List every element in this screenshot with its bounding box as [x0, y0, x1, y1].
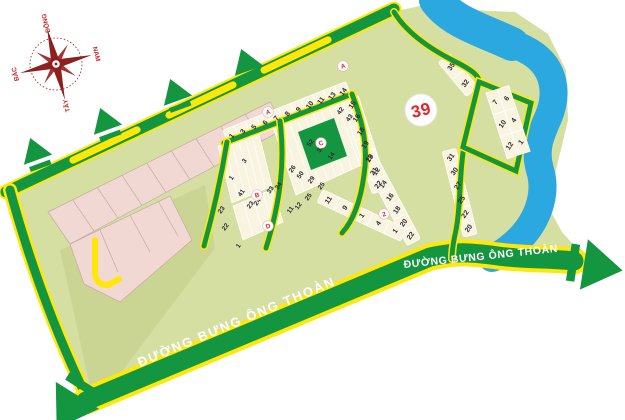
block-marker: A	[338, 61, 349, 72]
subdivision-map-image: 1356789101113141516181920212213121416182…	[0, 0, 625, 420]
block-marker: D	[263, 221, 274, 232]
road-exit-arrow-east	[565, 237, 625, 296]
block-marker: B	[252, 190, 263, 201]
block-marker: C	[316, 138, 327, 149]
area-39-badge: 39	[405, 94, 437, 126]
compass-north-label: BẮC	[9, 66, 21, 82]
compass-south-label: NAM	[91, 46, 101, 62]
block-marker: 2	[379, 209, 390, 220]
compass-rose: ĐÔNG BẮC NAM TÂY	[0, 3, 111, 123]
compass-west-label: TÂY	[60, 98, 72, 113]
block-marker: A	[263, 107, 274, 118]
compass-east-label: ĐÔNG	[39, 13, 52, 34]
map-canvas: 1356789101113141516181920212213121416182…	[0, 0, 625, 420]
